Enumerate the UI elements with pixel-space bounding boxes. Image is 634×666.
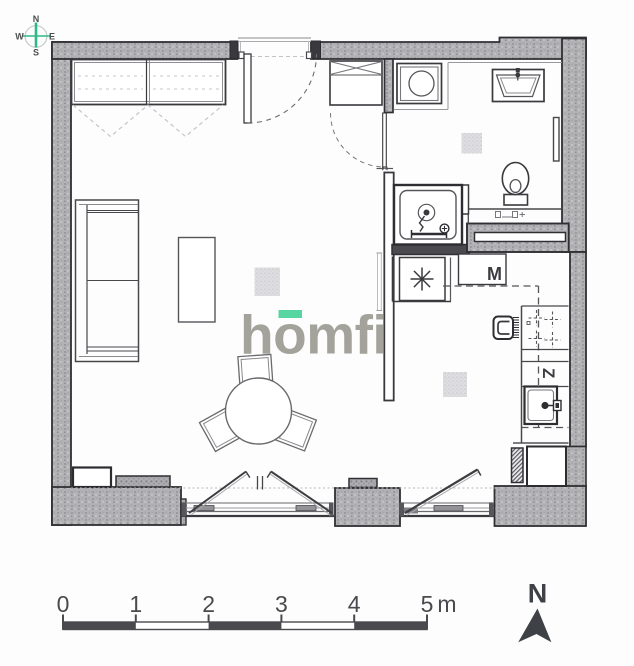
svg-text:Z: Z [539, 368, 558, 378]
svg-text:1: 1 [129, 591, 142, 617]
svg-text:0: 0 [57, 591, 70, 617]
svg-text:2: 2 [202, 591, 215, 617]
svg-text:N: N [33, 14, 40, 24]
svg-text:homfi: homfi [240, 304, 387, 366]
svg-text:M: M [487, 264, 502, 284]
svg-text:E: E [49, 32, 55, 42]
svg-text:4: 4 [348, 591, 361, 617]
svg-text:W: W [15, 32, 24, 42]
svg-text:5: 5 [421, 591, 434, 617]
svg-text:N: N [528, 579, 548, 609]
svg-text:m: m [437, 591, 456, 617]
svg-text:S: S [33, 48, 39, 58]
svg-text:3: 3 [275, 591, 288, 617]
